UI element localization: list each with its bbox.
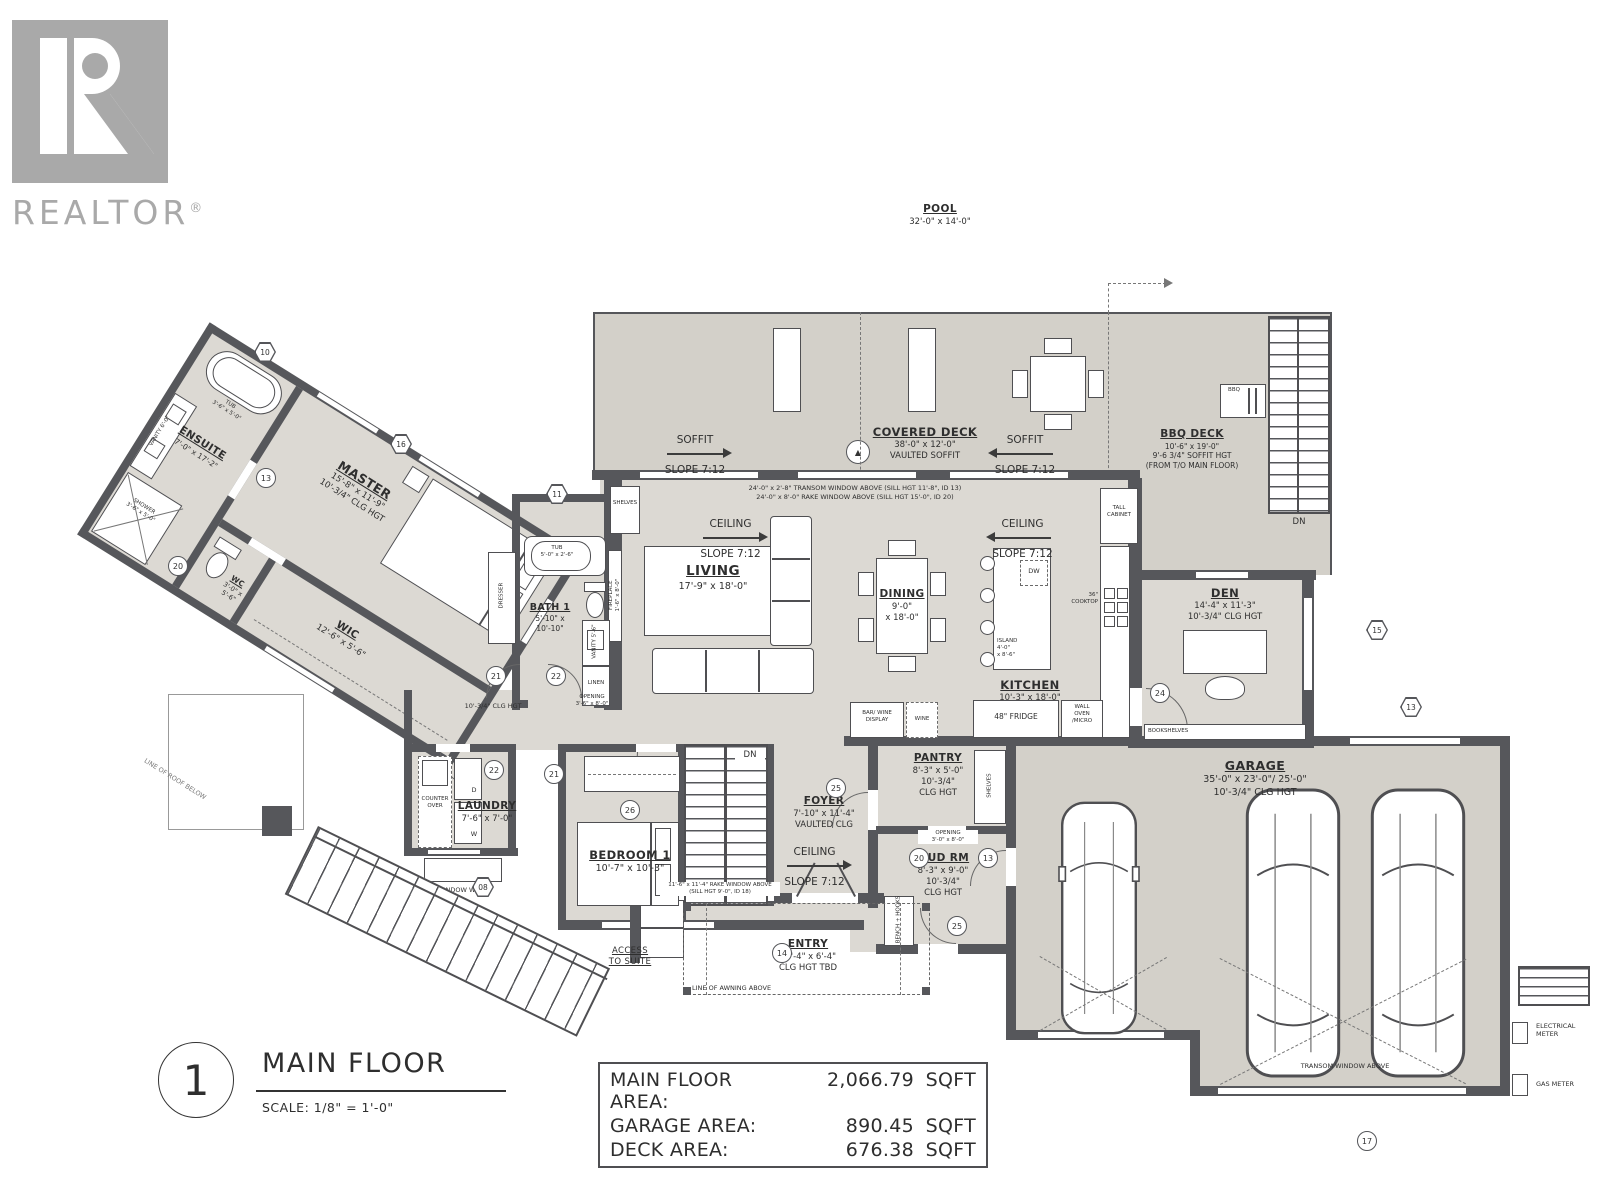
opening-note: OPENING 3'-6" x 8'-0" (560, 694, 624, 708)
room-note: 10'-3/4" (898, 877, 988, 888)
bbq-grill-line (1255, 388, 1257, 414)
note: 24'-0" x 2'-8" TRANSOM WINDOW ABOVE (SIL… (749, 484, 962, 492)
room-name: POOL (870, 203, 1010, 217)
car (1052, 798, 1146, 1038)
door-opening (1196, 572, 1248, 578)
area-label: GARAGE AREA: (610, 1115, 794, 1137)
room-name: COVERED DECK (855, 425, 995, 440)
door-tag: 14 (772, 943, 792, 963)
cooktop-burner (1117, 588, 1128, 599)
deck-stairs (1268, 316, 1330, 514)
sofa-cushion-line (705, 650, 707, 692)
window (1350, 738, 1460, 744)
room-dims: 38'-0" x 12'-0" (855, 440, 995, 451)
gas-meter-label: GAS METER (1536, 1080, 1596, 1088)
sofa-cushion-line (758, 650, 760, 692)
door-tag: 21 (486, 666, 506, 686)
window (798, 472, 916, 478)
living-label: LIVING 17'-9" x 18'-0" (648, 563, 778, 593)
door-opening (436, 744, 470, 752)
note: METER (1536, 1030, 1596, 1038)
dresser-label: DRESSER (498, 566, 505, 626)
fixture-name: OVEN (1061, 711, 1103, 718)
fixture-name: ISLAND (997, 638, 1017, 644)
cooktop-burner (1104, 602, 1115, 613)
room-dims: 9'-0" (872, 602, 932, 613)
deck-planter (908, 328, 936, 412)
room-name: BEDROOM 1 (572, 848, 688, 863)
pool-leader-line (1108, 283, 1166, 284)
note: OPENING (935, 830, 960, 836)
kitchen-counter (1100, 546, 1130, 738)
label-text: SOFFIT (1007, 434, 1044, 446)
door-tag: 21 (544, 764, 564, 784)
room-note: CLG HGT TBD (758, 963, 858, 974)
realtor-logo-icon (12, 20, 168, 183)
door-opening (1006, 848, 1016, 886)
label-text: TO SUITE (592, 957, 668, 968)
toilet-tank (584, 582, 606, 592)
door-tag: 17 (1357, 1131, 1377, 1151)
dining-chair (888, 540, 916, 556)
realtor-logo: REALTOR® (12, 20, 206, 232)
window-tag: 15 (1366, 620, 1388, 640)
room-dims: 35'-0" x 23'-0"/ 25'-0" (1175, 774, 1335, 786)
soffit-right-label: SOFFIT SLOPE 7:12 (985, 428, 1065, 479)
shelves-unit (610, 486, 640, 534)
garage-label: GARAGE 35'-0" x 23'-0"/ 25'-0" 10'-3/4" … (1175, 758, 1335, 799)
dishwasher-label: DW (1022, 567, 1046, 575)
room-name: BBQ DECK (1132, 428, 1252, 442)
room-name: PANTRY (898, 752, 978, 766)
room-note: (FROM T/O MAIN FLOOR) (1132, 461, 1252, 471)
note: 3'-0" x 8'-0" (918, 837, 978, 844)
room-dims: 7'-10" x 11'-4" (778, 809, 870, 820)
area-value: 890.45 (794, 1115, 914, 1137)
ceiling-left-label: CEILING SLOPE 7:12 (688, 512, 773, 563)
awning-post (683, 987, 691, 995)
access-to-suite-label: ACCESS TO SUITE (592, 946, 668, 968)
desk-chair (1205, 676, 1245, 700)
label-text: SOFFIT (677, 434, 714, 446)
laundry-sink (422, 760, 448, 786)
tub-label: TUB 5'-0" x 2'-6" (532, 545, 582, 559)
car (1243, 784, 1343, 1082)
fixture-dims: x 8'-6" (997, 652, 1037, 659)
rake-window-note: 11'-6" x 11'-4" RAKE WINDOW ABOVE (SILL … (660, 882, 780, 896)
window-well (424, 858, 502, 882)
room-dims: 10'-3" x 18'-0" (975, 693, 1085, 704)
bbq-deck-label: BBQ DECK 10'-6" x 19'-0" 9'-6 3/4" SOFFI… (1132, 428, 1252, 471)
outdoor-chair (1012, 370, 1028, 398)
room-dims: 10'-10" (518, 624, 582, 634)
wall (404, 744, 412, 856)
window (428, 850, 480, 854)
room-note: 10'-3/4" CLG HGT (1165, 612, 1285, 623)
room-name: FOYER (778, 795, 870, 809)
patio-post (262, 806, 292, 836)
awning-note: LINE OF AWNING ABOVE (692, 984, 792, 992)
room-name: GARAGE (1175, 758, 1335, 774)
ceiling-foyer-label: CEILING SLOPE 7:12 (772, 840, 857, 891)
den-label: DEN 14'-4" x 11'-3" 10'-3/4" CLG HGT (1165, 586, 1285, 623)
door-tag: 13 (978, 848, 998, 868)
bbq-grill-line (1248, 388, 1250, 414)
door-tag: 22 (546, 666, 566, 686)
fixture-dims: 5'-0" x 2'-6" (532, 552, 582, 559)
garage-transom-note: TRANSOM WINDOW ABOVE (1265, 1062, 1425, 1070)
awning-post (922, 903, 930, 911)
room-note: 9'-6 3/4" SOFFIT HGT (1132, 451, 1252, 461)
wall-oven-label: WALL OVEN /MICRO (1061, 704, 1103, 725)
ceiling-right-label: CEILING SLOPE 7:12 (980, 512, 1065, 563)
sheet-number: 1 (183, 1056, 210, 1105)
bookshelves-label: BOOKSHELVES (1148, 728, 1228, 735)
room-note: CLG HGT (898, 888, 988, 899)
door-tag: 20 (909, 848, 929, 868)
wall (1006, 736, 1016, 1036)
fixture-dims: 36" (1088, 592, 1098, 598)
dining-chair (930, 572, 946, 596)
tag-number: 15 (1368, 622, 1387, 639)
room-dims: 14'-4" x 11'-3" (1165, 601, 1285, 612)
area-unit: SQFT (914, 1115, 976, 1137)
wall (1500, 736, 1510, 1096)
bbq-label: BBQ (1222, 387, 1246, 394)
transom-note: 24'-0" x 2'-8" TRANSOM WINDOW ABOVE (SIL… (690, 484, 1020, 503)
door-tag: 26 (620, 800, 640, 820)
door-tag: 22 (484, 760, 504, 780)
fireplace-label: FIREPLACE 1'-6" x 8'-0" (608, 560, 622, 630)
fixture-dims: 1'-6" x 8'-0" (615, 560, 622, 630)
tag-number: 11 (548, 486, 567, 503)
hall-ceiling-note: 10'-3/4" CLG HGT (448, 702, 538, 710)
note: (SILL HGT 9'-0", ID 18) (660, 889, 780, 896)
door-tag: 20 (168, 556, 188, 576)
bath1-label: BATH 1 5'-10" x 10'-10" (518, 602, 582, 634)
fridge-label: 48" FRIDGE (973, 712, 1059, 722)
fixture-name: TUB (551, 545, 562, 551)
fixture-name: BAR/ WINE (862, 710, 892, 716)
bar-stool (980, 652, 995, 667)
outdoor-chair (1088, 370, 1104, 398)
slope-arrow-icon (787, 865, 843, 867)
room-dims: x 18'-0" (872, 613, 932, 624)
fixture-name: /MICRO (1061, 718, 1103, 725)
opening-note: OPENING 3'-0" x 8'-0" (918, 830, 978, 844)
bar-stool (980, 620, 995, 635)
slope-arrow-icon (995, 537, 1051, 539)
roofline-dash (1108, 312, 1109, 478)
label-text: ACCESS (592, 946, 668, 957)
registered-mark: ® (189, 201, 206, 216)
slope-arrow-icon (667, 453, 723, 455)
room-note: VAULTED CLG (778, 820, 870, 831)
note: 11'-6" x 11'-4" RAKE WINDOW ABOVE (668, 882, 772, 888)
stairs-dn-label: DN (735, 750, 765, 761)
label-text: SLOPE 7:12 (995, 464, 1055, 476)
wine-label: WINE (906, 716, 938, 723)
deck-planter (773, 328, 801, 412)
fixture-name: COOKTOP (1062, 599, 1098, 606)
floor-plan-canvas: REALTOR® POOL 32'-0" x 14'-0" DN BBQ ▲ (0, 0, 1600, 1200)
fixture-name: TALL (1113, 505, 1126, 511)
door-opening (1128, 688, 1142, 726)
window-tag: 13 (1400, 697, 1422, 717)
room-dims: 32'-0" x 14'-0" (870, 217, 1010, 228)
dining-chair (930, 618, 946, 642)
electrical-meter-label: ELECTRICAL METER (1536, 1022, 1596, 1039)
stairs-dn-label: DN (1284, 517, 1314, 528)
label-text: SLOPE 7:12 (784, 876, 844, 888)
room-name: BATH 1 (518, 602, 582, 614)
room-dims: 8'-3" x 9'-0" (898, 866, 988, 877)
sofa (652, 648, 814, 694)
room-name: DINING (872, 588, 932, 602)
room-name: KITCHEN (975, 678, 1085, 693)
shelves-label: SHELVES (606, 500, 644, 507)
area-label: DECK AREA: (610, 1139, 794, 1161)
tag-number: 13 (1402, 699, 1421, 716)
fixture-name: CABINET (1100, 512, 1138, 519)
exterior-steps (1518, 966, 1590, 1006)
label-text: SLOPE 7:12 (665, 464, 725, 476)
room-dims: 10'-6" x 19'-0" (1132, 442, 1252, 452)
bar-stool (980, 588, 995, 603)
sheet-number-circle: 1 (158, 1042, 234, 1118)
kitchen-label: KITCHEN 10'-3" x 18'-0" (975, 678, 1085, 704)
room-dims: 17'-9" x 18'-0" (648, 581, 778, 593)
title-underline (256, 1090, 506, 1092)
dining-label: DINING 9'-0" x 18'-0" (872, 588, 932, 624)
room-dims: 10'-7" x 10'-3" (572, 863, 688, 875)
cooktop-burner (1104, 616, 1115, 627)
soffit-left-label: SOFFIT SLOPE 7:12 (655, 428, 735, 479)
area-table-row: MAIN FLOOR AREA: 2,066.79 SQFT (610, 1069, 976, 1113)
tag-number: 08 (474, 879, 493, 896)
area-label: MAIN FLOOR AREA: (610, 1069, 794, 1113)
closet-rod (588, 774, 676, 775)
label-text: CEILING (710, 518, 752, 530)
door-opening (636, 744, 676, 752)
awning-post-line (706, 903, 707, 995)
fixture-name: DISPLAY (850, 717, 904, 724)
bedroom1-label: BEDROOM 1 10'-7" x 10'-3" (572, 848, 688, 875)
area-unit: SQFT (914, 1139, 976, 1161)
door-tag: 24 (1150, 683, 1170, 703)
tag-number: 16 (392, 436, 411, 453)
room-note: CLG HGT (898, 788, 978, 799)
sofa-cushion-line (772, 600, 810, 602)
fixture-name: FIREPLACE (608, 580, 614, 610)
tag-number: 10 (256, 344, 275, 361)
outdoor-table (1030, 356, 1086, 412)
pantry-label: PANTRY 8'-3" x 5'-0" 10'-3/4" CLG HGT (898, 752, 978, 799)
sheet-title: MAIN FLOOR (262, 1048, 446, 1079)
pool-label: POOL 32'-0" x 14'-0" (870, 203, 1010, 228)
room-note: 10'-3/4" (898, 777, 978, 788)
car (1368, 784, 1468, 1082)
room-name: LIVING (648, 563, 778, 581)
awning-post (683, 903, 691, 911)
door-tag: 13 (256, 468, 276, 488)
room-name: LAUNDRY (444, 800, 530, 814)
linen-label: LINEN (582, 680, 610, 687)
window (1304, 598, 1312, 690)
sheet-scale: SCALE: 1/8" = 1'-0" (262, 1100, 394, 1115)
area-table-row: DECK AREA: 676.38 SQFT (610, 1139, 976, 1161)
garage-door-opening (1218, 1088, 1466, 1094)
dryer-label: D (468, 786, 480, 794)
note: 24'-0" x 8'-0" RAKE WINDOW ABOVE (SILL H… (690, 493, 1020, 502)
door-opening (792, 893, 858, 903)
wall (1190, 1030, 1200, 1092)
bar-wine-label: BAR/ WINE DISPLAY (850, 710, 904, 724)
area-value: 676.38 (794, 1139, 914, 1161)
note: OPENING (579, 694, 604, 700)
door-tag: 25 (947, 916, 967, 936)
room-dims: 7'-6" x 7'-0" (444, 814, 530, 825)
area-table: MAIN FLOOR AREA: 2,066.79 SQFT GARAGE AR… (598, 1062, 988, 1168)
cooktop-burner (1104, 588, 1115, 599)
room-dims: 5'-10" x (518, 614, 582, 624)
title-block: 1 MAIN FLOOR SCALE: 1/8" = 1'-0" (158, 1042, 538, 1152)
dining-chair (888, 656, 916, 672)
cooktop-burner (1117, 616, 1128, 627)
tall-cabinet-label: TALL CABINET (1100, 505, 1138, 519)
fixture-dims: 4'-0" (997, 645, 1037, 652)
pool-arrowhead (1164, 278, 1173, 288)
sofa-cushion-line (772, 558, 810, 560)
room-note: 10'-3/4" CLG HGT (1175, 787, 1335, 799)
desk (1183, 630, 1267, 674)
area-unit: SQFT (914, 1069, 976, 1091)
wall (404, 690, 412, 752)
area-table-row: GARAGE AREA: 890.45 SQFT (610, 1115, 976, 1137)
slope-arrow-icon (703, 537, 759, 539)
awning-post (922, 987, 930, 995)
awning-post-line (900, 903, 901, 995)
realtor-logo-text: REALTOR (12, 193, 189, 232)
slope-arrow-icon (997, 453, 1053, 455)
pantry-shelves-label: SHELVES (986, 756, 993, 816)
foyer-label: FOYER 7'-10" x 11'-4" VAULTED CLG (778, 795, 870, 831)
laundry-label: LAUNDRY 7'-6" x 7'-0" (444, 800, 530, 825)
island-label: ISLAND 4'-0" x 8'-6" (997, 638, 1037, 659)
covered-deck-label: COVERED DECK 38'-0" x 12'-0" VAULTED SOF… (855, 425, 995, 462)
area-value: 2,066.79 (794, 1069, 914, 1091)
room-dims: 8'-3" x 5'-0" (898, 766, 978, 777)
label-text: SLOPE 7:12 (700, 548, 760, 560)
note: ELECTRICAL (1536, 1022, 1575, 1030)
label-text: CEILING (1002, 518, 1044, 530)
label-text: SLOPE 7:12 (992, 548, 1052, 560)
roofline-dash (1108, 283, 1109, 313)
electrical-meter-box (1512, 1022, 1528, 1044)
fixture-name: WALL (1074, 704, 1089, 710)
room-name: DEN (1165, 586, 1285, 601)
room-note: VAULTED SOFFIT (855, 451, 995, 462)
cooktop-label: 36" COOKTOP (1062, 592, 1098, 606)
door-tag: 25 (826, 778, 846, 798)
note: 3'-6" x 8'-0" (560, 701, 624, 708)
cooktop-burner (1117, 602, 1128, 613)
stair-rail (1297, 316, 1299, 514)
gas-meter-box (1512, 1074, 1528, 1096)
label-text: CEILING (794, 846, 836, 858)
outdoor-chair (1044, 338, 1072, 354)
washer-label: W (468, 830, 480, 838)
